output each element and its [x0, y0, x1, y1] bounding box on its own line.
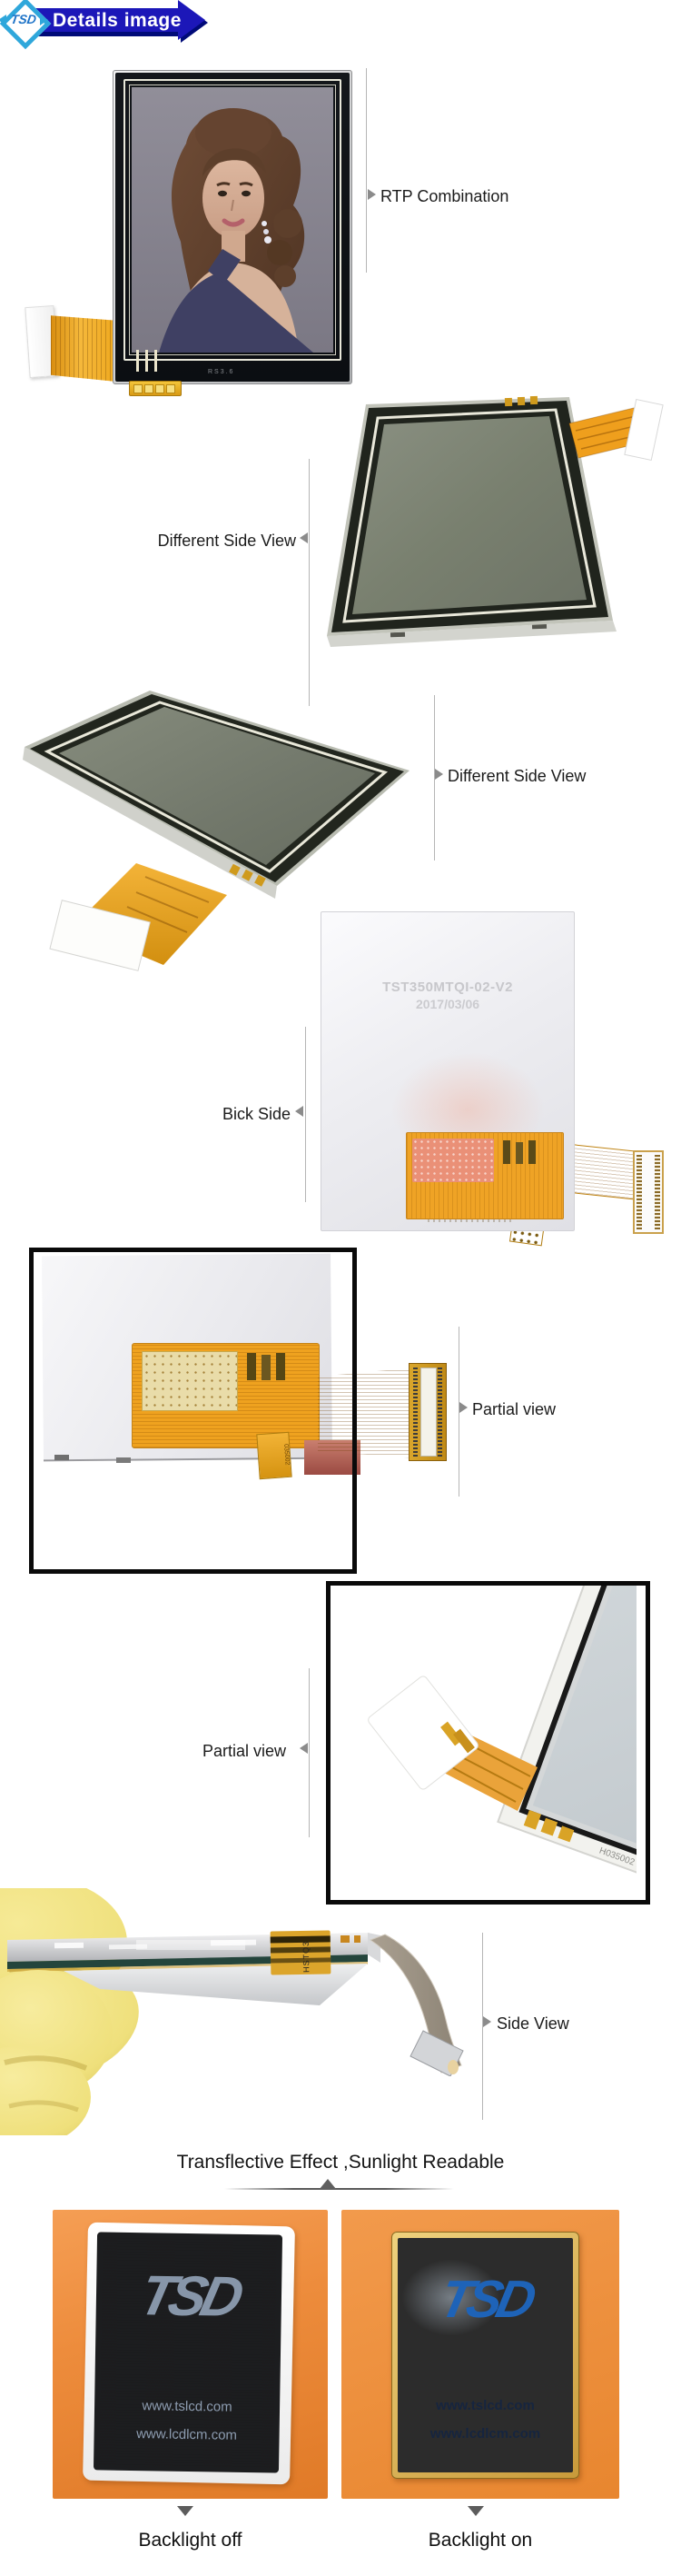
fpc-dot-pad: [142, 1351, 238, 1411]
callout-line-different-side-1: [309, 459, 310, 706]
touch-tail-connector: [129, 381, 182, 396]
screen-demo-portrait: [132, 87, 333, 353]
kapton-code: HSTQ3: [301, 1941, 311, 1973]
annotation-rtp-combination: RTP Combination: [380, 187, 508, 206]
flex-connector-pins: [409, 1363, 447, 1461]
callout-arrow-bick-side-icon: [295, 1106, 303, 1117]
touch-tail-traces: [136, 350, 163, 372]
module-bottom-code: RS3.6: [208, 369, 234, 375]
back-panel-date: 2017/03/06: [321, 997, 574, 1011]
screen-display-off: TSD www.tslcd.com www.lcdlcm.com: [99, 2237, 277, 2467]
screen-black-frame: TSD www.tslcd.com www.lcdlcm.com: [398, 2238, 573, 2472]
fpc-pink-pad: [412, 1139, 494, 1182]
callout-line-bick-side: [305, 1027, 306, 1202]
flex-ribbon-gold: [51, 309, 116, 382]
backlight-off-photo: TSD www.tslcd.com www.lcdlcm.com: [53, 2210, 328, 2499]
tsd-logo-text: TSD: [5, 12, 43, 26]
annotation-side-view: Side View: [497, 2014, 569, 2034]
screen-url-2: www.lcdlcm.com: [99, 2425, 273, 2443]
banner-arrow-icon: [178, 0, 205, 40]
back-panel-model-number: TST350MTQI-02-V2: [321, 980, 574, 995]
screen-bezel-gold: TSD www.tslcd.com www.lcdlcm.com: [391, 2232, 579, 2479]
partial-fpc-circuit: [132, 1343, 320, 1448]
heading-up-arrow-icon: [320, 2179, 336, 2189]
screen-bezel-white: TSD www.tslcd.com www.lcdlcm.com: [83, 2223, 295, 2485]
section-heading: Transflective Effect ,Sunlight Readable: [0, 2152, 681, 2173]
annotation-partial-view-2: Partial view: [150, 1742, 286, 1761]
details-banner: Details image TSD: [0, 0, 236, 45]
portrait-woman-illustration: [132, 87, 333, 353]
heading-underline: [224, 2188, 454, 2190]
screen-tsd-logo: TSD: [94, 2263, 283, 2331]
screen-url-1: www.tslcd.com: [100, 2397, 274, 2415]
lcd-module-angled-top: [318, 389, 672, 652]
backlight-on-photo: TSD www.tslcd.com www.lcdlcm.com: [341, 2210, 619, 2499]
caption-backlight-off: Backlight off: [53, 2530, 328, 2551]
callout-arrow-partial-1-icon: [459, 1402, 468, 1413]
lcd-module-front-photo: RS3.6: [113, 70, 352, 384]
screen-display-on: TSD www.tslcd.com www.lcdlcm.com: [400, 2240, 571, 2471]
banner-title: Details image: [53, 10, 182, 32]
flex-ribbon-gold: [318, 1368, 416, 1458]
flex-tail-gold: 035002: [256, 1432, 291, 1479]
screen-black-frame: TSD www.tslcd.com www.lcdlcm.com: [94, 2232, 282, 2472]
callout-arrow-side-view-icon: [483, 2016, 491, 2027]
lcd-module-back-side: TST350MTQI-02-V2 2017/03/06: [321, 911, 575, 1231]
callout-arrow-different-side-1-icon: [300, 532, 308, 543]
callout-arrow-rtp-icon: [368, 189, 376, 200]
caption-down-arrow-left-icon: [177, 2506, 193, 2516]
screen-tsd-logo: TSD: [393, 2269, 577, 2330]
flex-connector-white: [633, 1150, 664, 1234]
annotation-different-side-view-1: Different Side View: [136, 532, 296, 551]
glove-hand-front: [0, 1954, 145, 2135]
callout-arrow-different-side-2-icon: [435, 769, 443, 780]
annotation-bick-side: Bick Side: [154, 1105, 291, 1124]
module-screen-area: [352, 416, 587, 614]
caption-backlight-on: Backlight on: [341, 2530, 619, 2551]
caption-down-arrow-right-icon: [468, 2506, 484, 2516]
callout-line-rtp: [366, 68, 367, 273]
partial-view-2-photo: H035002 1-2: [331, 1586, 637, 1891]
annotation-different-side-view-2: Different Side View: [448, 767, 586, 786]
partial-view-2-frame: H035002 1-2: [326, 1581, 650, 1905]
screen-url-2: www.lcdlcm.com: [400, 2426, 571, 2442]
back-fpc-circuit: [406, 1132, 564, 1219]
callout-arrow-partial-2-icon: [300, 1743, 308, 1754]
screen-url-1: www.tslcd.com: [400, 2398, 571, 2413]
annotation-partial-view-1: Partial view: [472, 1400, 556, 1419]
callout-line-partial-2: [309, 1668, 310, 1837]
